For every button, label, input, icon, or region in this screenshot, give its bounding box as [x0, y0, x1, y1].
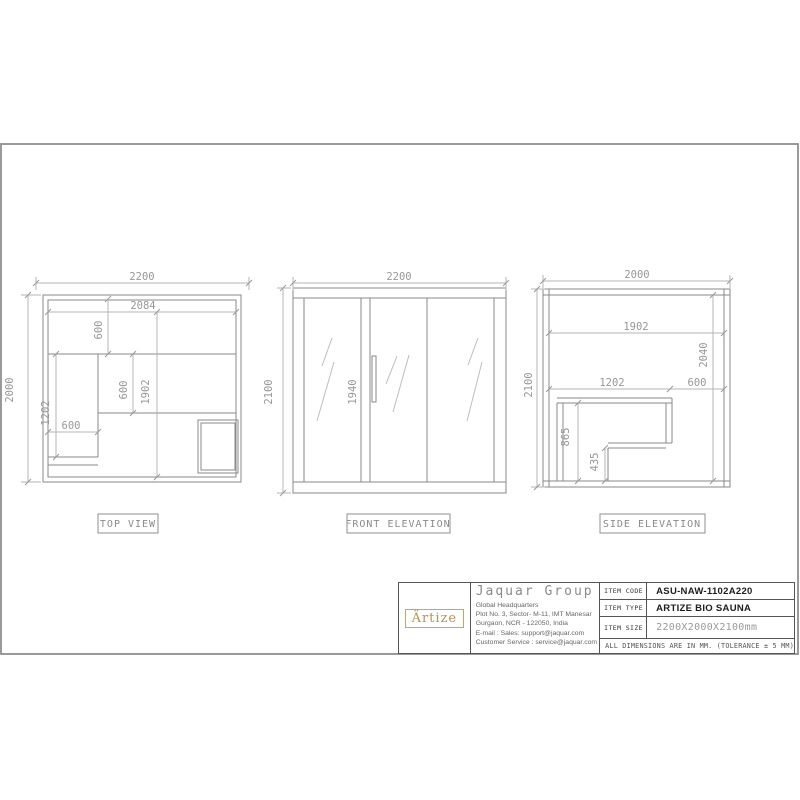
- tolerance-note: ALL DIMENSIONS ARE IN MM. (TOLERANCE ± 5…: [600, 639, 794, 653]
- side-inner-depth-dim: 1902: [623, 321, 648, 333]
- top-left-bench-length-dim: 1202: [40, 400, 52, 425]
- view-labels: TOP VIEW FRONT ELEVATION SIDE ELEVATION: [98, 514, 705, 533]
- side-width-dim: 2000: [624, 269, 649, 281]
- item-code-label: ITEM CODE: [600, 583, 647, 599]
- item-size-row: ITEM SIZE 2200X2000X2100mm: [600, 617, 794, 639]
- side-elevation: 2000 2100 1902 2040 1202 600 865 435: [523, 269, 733, 490]
- side-inner-height-dim: 2040: [698, 342, 710, 367]
- brand-logo-cell: Ärtize: [399, 583, 471, 653]
- item-code-row: ITEM CODE ASU-NAW-1102A220: [600, 583, 794, 600]
- top-inner-depth-dim: 1902: [140, 379, 152, 404]
- front-dim-ticks: [280, 280, 509, 496]
- artize-logo: Ärtize: [405, 609, 465, 628]
- glass-reflection-marks: [317, 338, 482, 421]
- front-dim-lines: [277, 277, 506, 493]
- company-cell: Jaquar Group Global Headquarters Plot No…: [471, 583, 600, 653]
- item-table: ITEM CODE ASU-NAW-1102A220 ITEM TYPE ART…: [600, 583, 794, 653]
- item-type-value: ARTIZE BIO SAUNA: [647, 600, 794, 616]
- address-line: Customer Service : service@jaquar.com: [476, 638, 599, 647]
- item-size-label: ITEM SIZE: [600, 617, 647, 638]
- top-width-dim: 2200: [129, 271, 154, 283]
- address-line: E-mail : Sales: support@jaquar.com: [476, 629, 599, 638]
- item-code-value: ASU-NAW-1102A220: [647, 583, 794, 599]
- front-width-dim: 2200: [386, 271, 411, 283]
- top-view: 2200 2000 2084 600 1902 600 1202 600: [4, 271, 252, 485]
- side-height-dim: 2100: [523, 372, 535, 397]
- bench-height-dim: 865: [560, 428, 572, 447]
- drawing-canvas: 2200 2000 2084 600 1902 600 1202 600 220…: [0, 0, 800, 800]
- front-height-dim: 2100: [263, 379, 275, 404]
- title-block: Ärtize Jaquar Group Global Headquarters …: [398, 582, 795, 654]
- drawing-sheet: 2200 2000 2084 600 1902 600 1202 600 220…: [0, 0, 800, 800]
- front-elevation: 2200 2100 1940: [263, 271, 509, 496]
- door-height-dim: 1940: [347, 379, 359, 404]
- top-view-label: TOP VIEW: [100, 519, 156, 530]
- side-elevation-label: SIDE ELEVATION: [603, 519, 701, 530]
- top-inner-width-dim: 2084: [130, 300, 155, 312]
- side-clearance-dim: 600: [688, 377, 707, 389]
- top-left-bench-width-dim: 600: [62, 420, 81, 432]
- step-height-dim: 435: [589, 453, 601, 472]
- address-line: Plot No. 3, Sector- M-11, IMT Manesar: [476, 610, 599, 619]
- front-elevation-label: FRONT ELEVATION: [345, 519, 450, 530]
- door-handle: [372, 356, 376, 402]
- top-mid-depth-dim: 600: [118, 381, 130, 400]
- top-depth-dim: 2000: [4, 377, 16, 402]
- company-name: Jaquar Group: [476, 584, 599, 599]
- item-type-label: ITEM TYPE: [600, 600, 647, 616]
- top-bench-depth-dim: 600: [93, 321, 105, 340]
- item-size-value: 2200X2000X2100mm: [647, 617, 794, 638]
- address-line: Gurgaon, NCR - 122050, India: [476, 619, 599, 628]
- item-type-row: ITEM TYPE ARTIZE BIO SAUNA: [600, 600, 794, 617]
- address-line: Global Headquarters: [476, 601, 599, 610]
- company-address: Global Headquarters Plot No. 3, Sector- …: [476, 601, 599, 647]
- side-bench-length-dim: 1202: [599, 377, 624, 389]
